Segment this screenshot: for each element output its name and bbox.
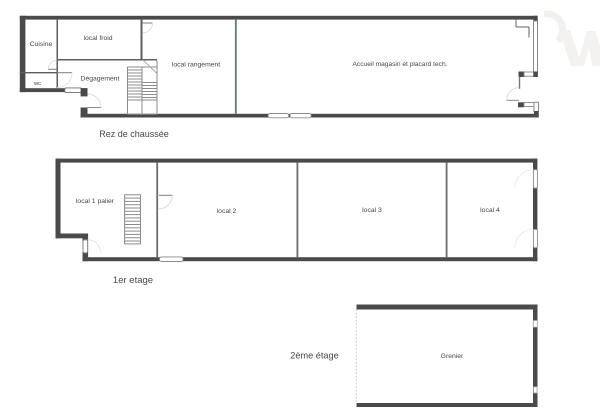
svg-text:Grenier: Grenier xyxy=(441,353,464,360)
svg-text:Dégagement: Dégagement xyxy=(81,75,120,82)
svg-text:wc: wc xyxy=(33,81,41,87)
svg-text:Cuisine: Cuisine xyxy=(30,41,53,48)
svg-text:local rangement: local rangement xyxy=(172,62,220,69)
svg-text:1er etage: 1er etage xyxy=(113,275,153,286)
svg-text:local 4: local 4 xyxy=(480,207,500,214)
svg-text:Rez de chaussée: Rez de chaussée xyxy=(99,129,169,139)
svg-text:local froid: local froid xyxy=(83,35,112,42)
svg-text:2ème étage: 2ème étage xyxy=(290,351,339,361)
svg-text:local 3: local 3 xyxy=(362,207,382,214)
svg-text:Accueil magasin et placard tec: Accueil magasin et placard tech. xyxy=(353,61,448,68)
svg-text:local 2: local 2 xyxy=(217,208,237,215)
svg-text:local 1 palier: local 1 palier xyxy=(76,198,115,205)
